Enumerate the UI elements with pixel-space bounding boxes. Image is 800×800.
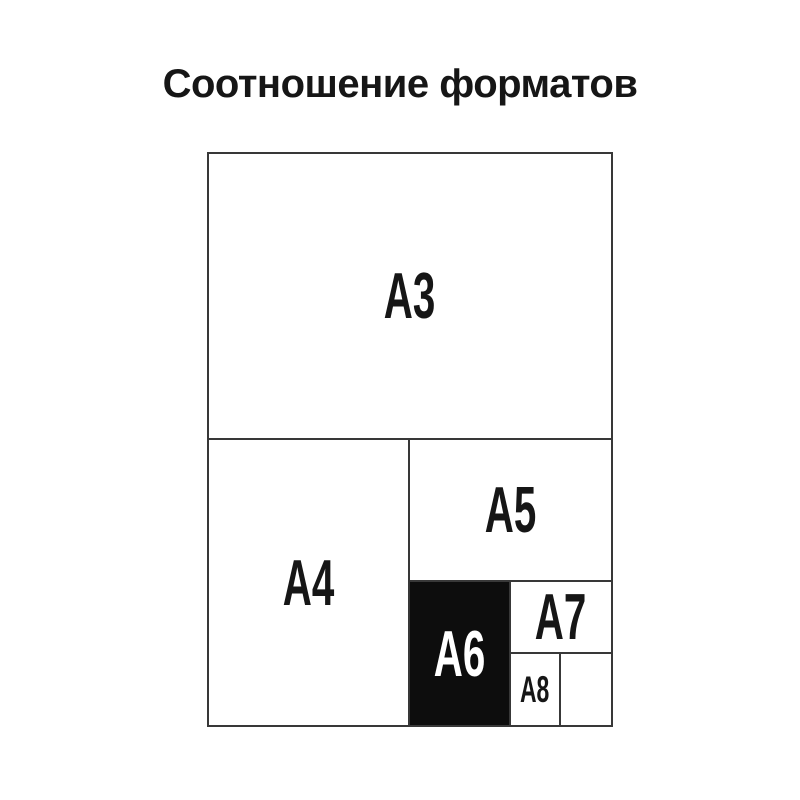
- format-label-a5: A5: [485, 477, 537, 542]
- format-cell-a3: A3: [209, 154, 611, 440]
- format-diagram: A3 A4 A5 A6 A7 A8: [207, 152, 613, 727]
- format-label-a6: A6: [433, 621, 485, 686]
- diagram-bottom-half: A4 A5 A6 A7 A8: [209, 440, 611, 726]
- format-label-a4: A4: [283, 550, 335, 615]
- format-cell-a7: A7: [511, 582, 612, 653]
- format-cell-a6-highlighted: A6: [410, 582, 511, 725]
- diagram-a7-column: A7 A8: [511, 582, 612, 725]
- diagram-a8-row: A8: [511, 654, 612, 725]
- format-label-a3: A3: [384, 263, 436, 328]
- format-cell-a4: A4: [209, 440, 410, 726]
- diagram-a6-row: A6 A7 A8: [410, 582, 611, 725]
- format-cell-a5: A5: [410, 440, 611, 583]
- format-cell-remainder: [561, 654, 611, 725]
- format-cell-a8: A8: [511, 654, 561, 725]
- diagram-right-column: A5 A6 A7 A8: [410, 440, 611, 726]
- format-label-a7: A7: [535, 584, 587, 649]
- page-title: Соотношение форматов: [0, 62, 800, 107]
- format-label-a8: A8: [520, 671, 549, 708]
